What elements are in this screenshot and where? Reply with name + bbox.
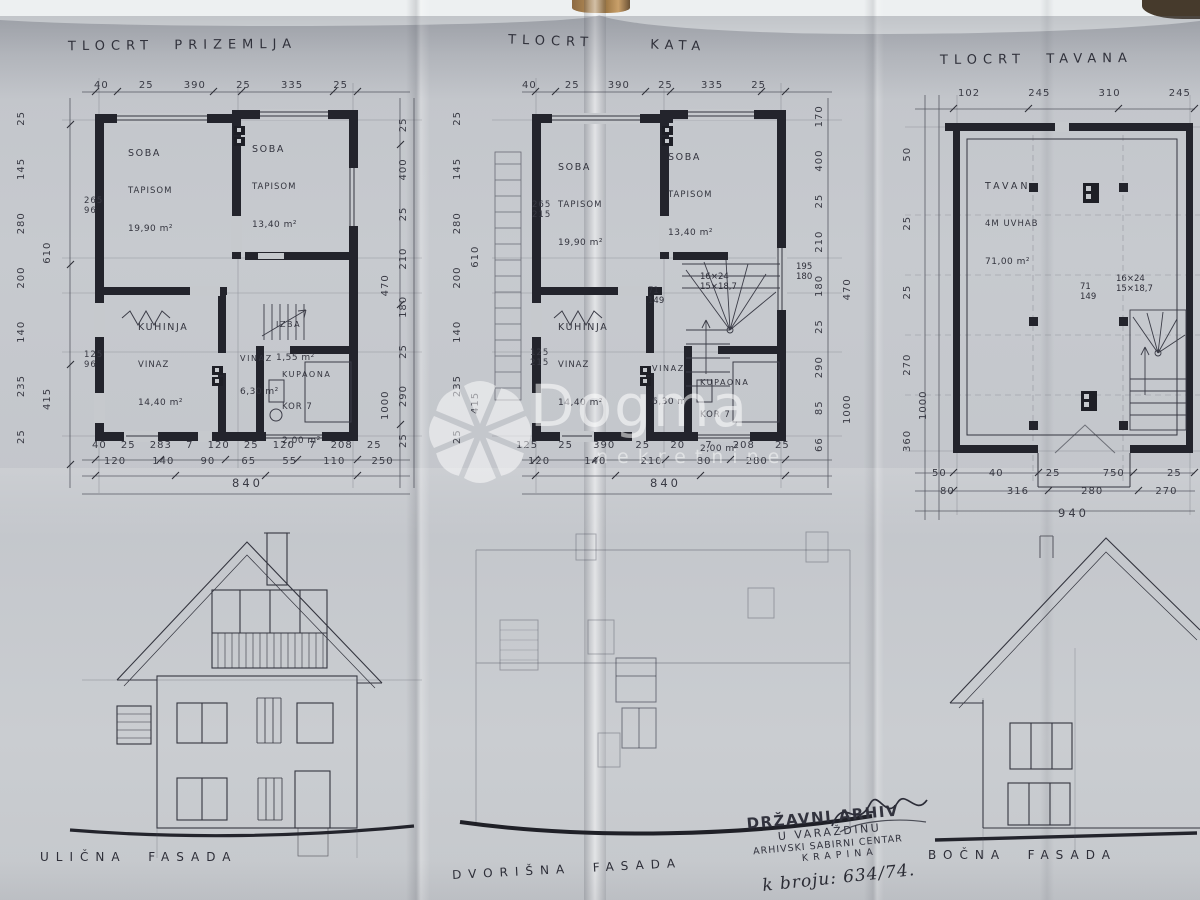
room-name: SOBA [668, 152, 713, 165]
plan2-stairs-note: 16×24 15×18,7 [700, 272, 737, 292]
room-name: IZBA [276, 320, 315, 331]
stairs-dim: 149 [1080, 292, 1096, 302]
plan3-dims-bottom-1: 50 40 25 750 25 [932, 468, 1182, 479]
plan3-dims-top: 102 245 310 245 [958, 88, 1191, 99]
dim-value: 265 [532, 200, 551, 210]
stairs-dim: 71 [648, 286, 659, 296]
room-area: 19,90 m² [128, 223, 173, 235]
room-name: SOBA [252, 144, 297, 157]
room-floor: KOR 7 [700, 410, 750, 421]
plan2-room-kuhinja: KUHINJA VINAZ 14,40 m² [558, 296, 608, 435]
plan2-landing-dims: 195 180 [796, 262, 812, 282]
room-area: 19,90 m² [558, 237, 603, 249]
room-floor: KOR 7 [282, 402, 332, 413]
plan2-drawing [492, 68, 842, 500]
plan2-room-soba2: SOBA TAPISOM 13,40 m² [668, 126, 713, 265]
plan1-dim-b: 12596 [84, 350, 103, 370]
room-area: 14,40 m² [558, 397, 608, 409]
plan2-dims-total: 840 [650, 476, 681, 490]
plan1-dims-left: 25 235 140 200 280 145 25 [16, 111, 27, 444]
plan1-dims-left-total: 415 610 [42, 242, 53, 410]
dim-value: 265 [84, 196, 103, 206]
paper-curl-right [592, 0, 1200, 34]
room-floor: TAPISOM [128, 186, 173, 197]
stairs-riser-note: 16×24 [1116, 274, 1145, 284]
facade3-drawing [935, 528, 1200, 873]
room-area: 71,00 m² [985, 256, 1039, 268]
plan1-dims-bottom-2: 120 140 90 65 55 110 250 [104, 456, 394, 467]
blueprint-sheet: TLOCRT PRIZEMLJA [0, 0, 1200, 900]
room-floor: VINAZ [138, 360, 188, 371]
room-floor: TAPISOM [252, 182, 297, 193]
plan3-stairs-note: 16×24 15×18,7 [1116, 274, 1153, 294]
room-floor: 4M UVHAB [985, 219, 1039, 230]
plan2-dims-top: 40 25 390 25 335 25 [522, 80, 766, 91]
dim-value: 125 [530, 348, 549, 358]
plan2-dims-right-total: 1000 470 [842, 278, 853, 424]
plan3-dims-left: 360 270 25 25 50 [902, 147, 913, 452]
room-name: KUHINJA [138, 322, 188, 335]
plan2-dims-right: 66 85 290 25 180 210 25 400 170 [814, 105, 825, 452]
plan3-dims-bottom-2: 80 316 280 270 [940, 486, 1178, 497]
plan2-room-soba1: SOBA TAPISOM 19,90 m² [558, 136, 603, 275]
stairs-dim: 195 [796, 262, 812, 272]
plan2-dims-left-total: 415 610 [470, 246, 481, 414]
facade2-label: DVORIŠNA FASADA [452, 856, 682, 882]
room-area: 13,40 m² [668, 227, 713, 239]
plan3-dims-left-total: 1000 [918, 391, 929, 420]
plan2-dim-b: 125215 [530, 348, 549, 368]
plan1-room-soba2: SOBA TAPISOM 13,40 m² [252, 118, 297, 257]
plan1-dim-a: 26596 [84, 196, 103, 216]
plan2-title: TLOCRT KATA [508, 33, 707, 55]
room-name: SOBA [558, 162, 603, 175]
plan2-room-vinaz: VINAZ 6,30 m² [652, 342, 691, 430]
dim-value: 215 [532, 210, 551, 220]
plan1-dims-total: 840 [232, 476, 263, 490]
plan3-drawing [905, 95, 1200, 525]
room-name: KUHINJA [558, 322, 608, 335]
room-name: TAVAN [985, 181, 1039, 194]
room-area: 6,30 m² [652, 396, 691, 408]
plan2-room-kupaona: KUPAONA KOR 7 2,00 m² [700, 356, 750, 477]
plan1-room-kuhinja: KUHINJA VINAZ 14,40 m² [138, 296, 188, 435]
signature-scribble [830, 792, 930, 836]
room-floor: TAPISOM [558, 200, 603, 211]
facade3-label: BOČNA FASADA [928, 848, 1117, 862]
plan3-title: TLOCRT TAVANA [940, 51, 1133, 68]
plan2-dims-left: 25 235 140 200 280 145 25 [452, 111, 463, 444]
plan3-room-tavan: TAVAN 4M UVHAB 71,00 m² [985, 155, 1039, 294]
plan1-title: TLOCRT PRIZEMLJA [68, 37, 297, 54]
plan3-stairs-width: 71 149 [1080, 282, 1096, 302]
room-floor: VINAZ [558, 360, 608, 371]
plan2-dim-a: 265215 [532, 200, 551, 220]
room-name: VINAZ [240, 354, 279, 365]
plan3-dims-total: 940 [1058, 506, 1089, 520]
stairs-riser-note: 16×24 [700, 272, 729, 282]
room-area: 14,40 m² [138, 397, 188, 409]
plan1-dims-bottom-1: 40 25 283 7 120 25 120 7 208 25 [92, 440, 382, 451]
plan1-room-kupaona: KUPAONA KOR 7 2,00 m² [282, 348, 332, 469]
paper-curl-left [0, 0, 600, 26]
room-floor: TAPISOM [668, 190, 713, 201]
room-name: VINAZ [652, 364, 691, 375]
stairs-riser-note: 15×18,7 [1116, 284, 1153, 294]
facade1-label: ULIČNA FASADA [40, 850, 238, 864]
dim-value: 125 [84, 350, 103, 360]
room-name: KUPAONA [700, 378, 750, 389]
room-area: 2,00 m² [700, 443, 750, 455]
plan2-stairs-width: 71 149 [648, 286, 664, 306]
dim-value: 96 [84, 360, 97, 370]
room-name: SOBA [128, 148, 173, 161]
plan1-drawing [62, 68, 422, 500]
stairs-riser-note: 15×18,7 [700, 282, 737, 292]
plan1-room-vinaz: VINAZ 6,30 m² [240, 332, 279, 420]
room-area: 13,40 m² [252, 219, 297, 231]
dim-value: 215 [530, 358, 549, 368]
room-area: 6,30 m² [240, 386, 279, 398]
stairs-dim: 149 [648, 296, 664, 306]
plan1-dims-top: 40 25 390 25 335 25 [94, 80, 348, 91]
room-name: KUPAONA [282, 370, 332, 381]
plan1-room-soba1: SOBA TAPISOM 19,90 m² [128, 122, 173, 261]
stairs-dim: 71 [1080, 282, 1091, 292]
dim-value: 96 [84, 206, 97, 216]
room-area: 2,00 m² [282, 435, 332, 447]
stairs-dim: 180 [796, 272, 812, 282]
facade1-drawing [62, 528, 430, 858]
plan1-dims-right: 25 290 25 180 210 25 400 25 [398, 118, 409, 449]
wood-gap [572, 0, 630, 13]
plan1-dims-right-total: 1000 470 [380, 274, 391, 420]
